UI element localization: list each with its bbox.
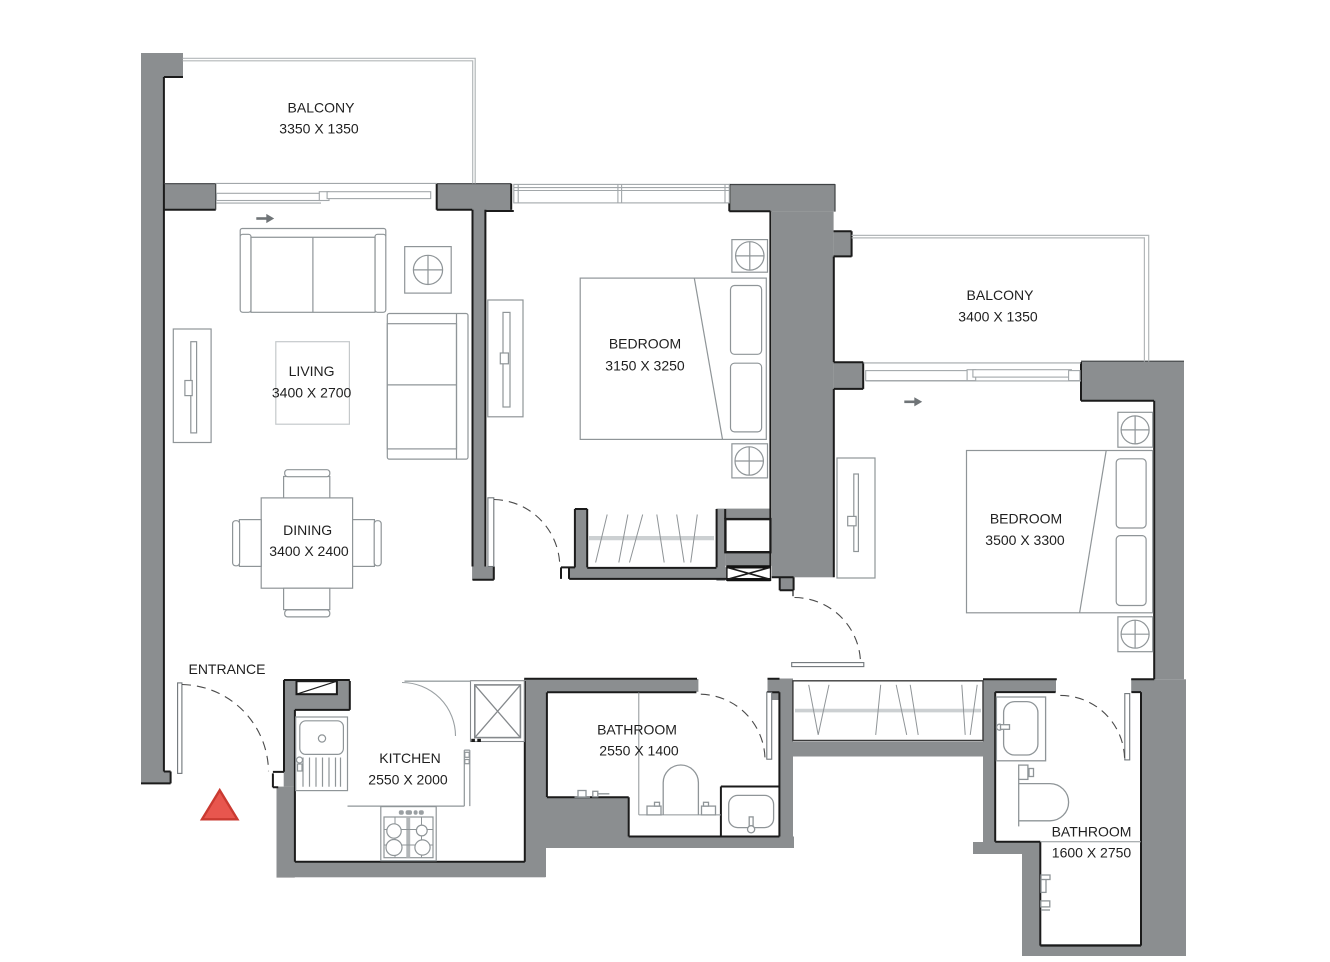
svg-text:3350 X 1350: 3350 X 1350 xyxy=(279,121,359,137)
svg-text:ENTRANCE: ENTRANCE xyxy=(188,661,265,677)
svg-text:2550 X 2000: 2550 X 2000 xyxy=(368,772,448,788)
svg-text:BEDROOM: BEDROOM xyxy=(990,511,1062,527)
svg-text:3400 X 2400: 3400 X 2400 xyxy=(269,543,349,559)
svg-text:BATHROOM: BATHROOM xyxy=(1052,824,1132,840)
svg-text:BALCONY: BALCONY xyxy=(288,100,356,116)
svg-text:BALCONY: BALCONY xyxy=(967,287,1035,303)
svg-text:2550 X 1400: 2550 X 1400 xyxy=(599,743,679,759)
svg-text:BEDROOM: BEDROOM xyxy=(609,336,681,352)
svg-text:LIVING: LIVING xyxy=(289,363,335,379)
svg-text:3150 X 3250: 3150 X 3250 xyxy=(605,358,685,374)
svg-text:3400 X 1350: 3400 X 1350 xyxy=(958,309,1038,325)
svg-text:3400 X 2700: 3400 X 2700 xyxy=(272,385,352,401)
svg-text:KITCHEN: KITCHEN xyxy=(379,750,440,766)
svg-text:BATHROOM: BATHROOM xyxy=(597,722,677,738)
svg-text:DINING: DINING xyxy=(283,522,332,538)
svg-text:1600 X 2750: 1600 X 2750 xyxy=(1052,845,1132,861)
svg-text:3500 X 3300: 3500 X 3300 xyxy=(985,532,1065,548)
